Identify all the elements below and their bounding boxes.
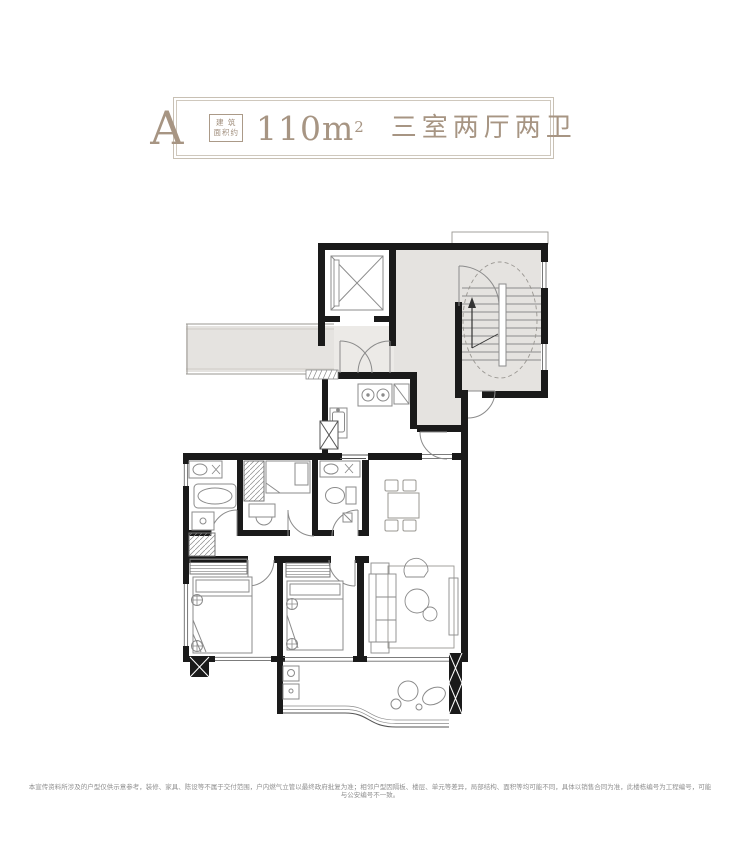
dining-area (385, 480, 419, 531)
stairwell (459, 250, 541, 391)
bathroom-2 (320, 461, 360, 522)
floorplan (0, 0, 740, 865)
living-room (369, 558, 458, 653)
bedroom-3 (244, 461, 310, 525)
bedroom-1 (190, 559, 252, 653)
roof-parapet (452, 232, 548, 244)
balcony (283, 666, 449, 727)
disclaimer-text: 本宣传资料所涉及的户型仅供示意参考，装修、家具、陈设等不属于交付范围，户内燃气立… (28, 784, 712, 800)
public-corridor (186, 324, 334, 374)
bathroom-1 (189, 461, 236, 556)
kitchen (320, 384, 409, 449)
elevator-shaft (325, 250, 389, 316)
